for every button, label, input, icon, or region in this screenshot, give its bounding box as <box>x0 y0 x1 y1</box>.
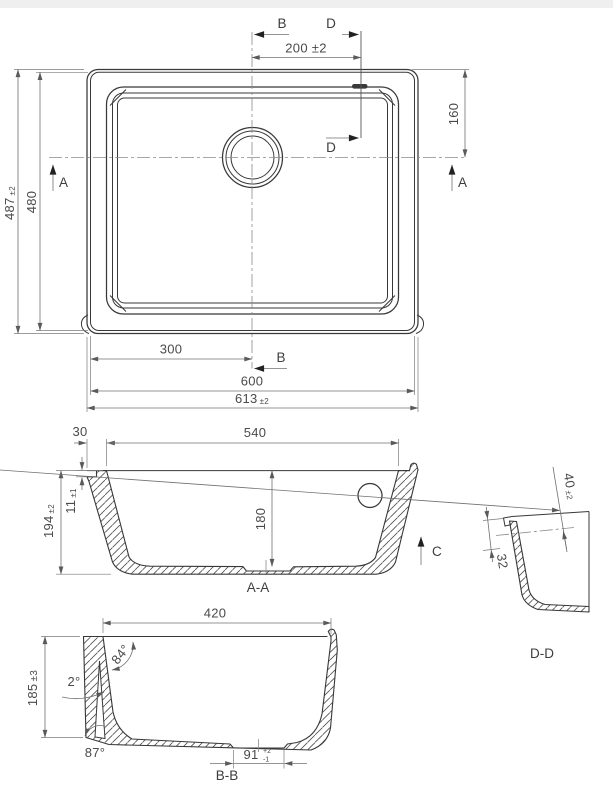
detail-dd-title: D-D <box>530 646 554 661</box>
dd-dim-32: 32 <box>494 552 511 569</box>
bowl-bottom-edge <box>118 98 388 303</box>
aa-overflow-hole <box>358 484 382 508</box>
bb-dim-91-tol-minus: -1 <box>263 757 269 764</box>
bowl-chamfer-line <box>113 93 393 308</box>
bb-angle-84: 84° <box>108 642 132 667</box>
detail-dd: 40±2 32 D-D <box>0 467 589 661</box>
section-d-label-top: D <box>326 16 336 31</box>
bowl-rim <box>107 87 399 314</box>
aa-dim-194: 194±2 <box>41 504 56 538</box>
dd-dim32-arrow-bottom <box>491 550 492 562</box>
view-c-label: C <box>432 544 442 559</box>
dd-top-edge <box>512 512 589 517</box>
dim-613: 613±2 <box>235 391 269 406</box>
dim-487: 487±2 <box>2 186 17 220</box>
bb-angle-2: 2° <box>67 674 80 689</box>
dd-centerline <box>496 528 574 536</box>
sink-outer-edge <box>87 70 418 334</box>
sink-inner-edge <box>91 72 415 330</box>
section-a-label-left: A <box>59 175 68 190</box>
technical-drawing: B D D A A B 200 ±2 160 487±2 480 300 <box>0 0 613 800</box>
bb-angle-87: 87° <box>85 745 106 760</box>
section-aa-title: A-A <box>247 580 270 595</box>
section-b-label-lower: B <box>276 350 285 365</box>
aa-dim-30: 30 <box>72 424 87 439</box>
overflow-slot <box>352 84 368 89</box>
dim-200: 200 ±2 <box>285 41 326 56</box>
dd-wall-section <box>510 521 590 612</box>
dim-600: 600 <box>241 374 264 389</box>
dd-ext-32-top <box>483 519 503 521</box>
top-view: B D D A A B 200 ±2 160 487±2 480 300 <box>2 16 469 412</box>
dd-dim-40: 40±2 <box>561 472 580 501</box>
bowl-corner-chamfers <box>110 90 395 312</box>
mount-tab-right <box>416 315 424 334</box>
dd-dim-line-32 <box>488 519 492 551</box>
scan-edge-strip <box>0 0 613 8</box>
bb-dim-91: 91 <box>243 747 258 762</box>
aa-dim-11: 11±1 <box>63 488 78 514</box>
aa-dim-180: 180 <box>253 508 268 531</box>
dd-dim40-arrow-top <box>0 470 560 511</box>
dd-dim32-arrow-top <box>486 507 487 519</box>
bb-dim-420: 420 <box>204 606 227 621</box>
section-bb: 420 185±3 84° 2° 87° 91 +2 -1 B-B <box>25 606 337 784</box>
section-aa: 30 540 11±1 194±2 180 C A-A <box>41 424 442 595</box>
section-a-label-right: A <box>458 175 467 190</box>
dim-480: 480 <box>24 191 39 214</box>
dd-dim40-arrow-bottom <box>563 532 566 550</box>
bb-dim-185: 185±3 <box>25 670 40 706</box>
aa-dim-540: 540 <box>244 425 267 440</box>
section-bb-title: B-B <box>216 768 239 783</box>
dim-300: 300 <box>160 342 183 357</box>
drawing-canvas: B D D A A B 200 ±2 160 487±2 480 300 <box>0 0 613 800</box>
bb-dim-91-tol-plus: +2 <box>263 748 271 755</box>
section-d-label-lower: D <box>326 140 336 155</box>
section-b-label-top: B <box>277 16 286 31</box>
dim-160: 160 <box>446 103 461 126</box>
